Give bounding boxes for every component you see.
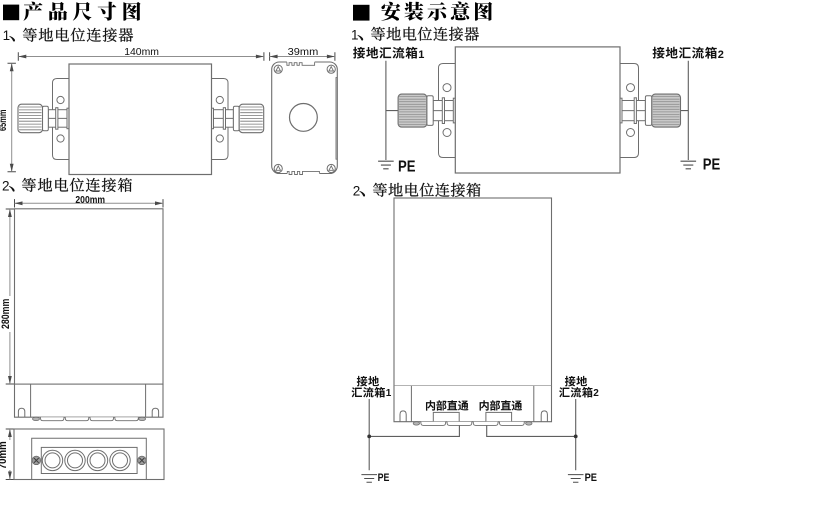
svg-text:70mm: 70mm bbox=[0, 441, 9, 469]
svg-text:1: 1 bbox=[351, 27, 359, 42]
svg-text:PE: PE bbox=[398, 158, 416, 175]
svg-text:200mm: 200mm bbox=[75, 195, 105, 206]
svg-text:2: 2 bbox=[353, 183, 361, 198]
svg-text:2: 2 bbox=[2, 178, 10, 193]
svg-text:2: 2 bbox=[593, 388, 599, 399]
svg-text:PE: PE bbox=[585, 472, 597, 484]
svg-text:2: 2 bbox=[718, 49, 724, 61]
svg-text:1: 1 bbox=[3, 28, 11, 43]
svg-text:280mm: 280mm bbox=[0, 299, 12, 329]
svg-text:PE: PE bbox=[703, 156, 721, 173]
svg-text:39mm: 39mm bbox=[288, 46, 319, 58]
svg-text:65mm: 65mm bbox=[0, 110, 9, 132]
svg-text:140mm: 140mm bbox=[124, 46, 159, 58]
svg-text:1: 1 bbox=[418, 49, 424, 61]
svg-text:1: 1 bbox=[386, 388, 392, 399]
svg-text:PE: PE bbox=[378, 472, 390, 484]
